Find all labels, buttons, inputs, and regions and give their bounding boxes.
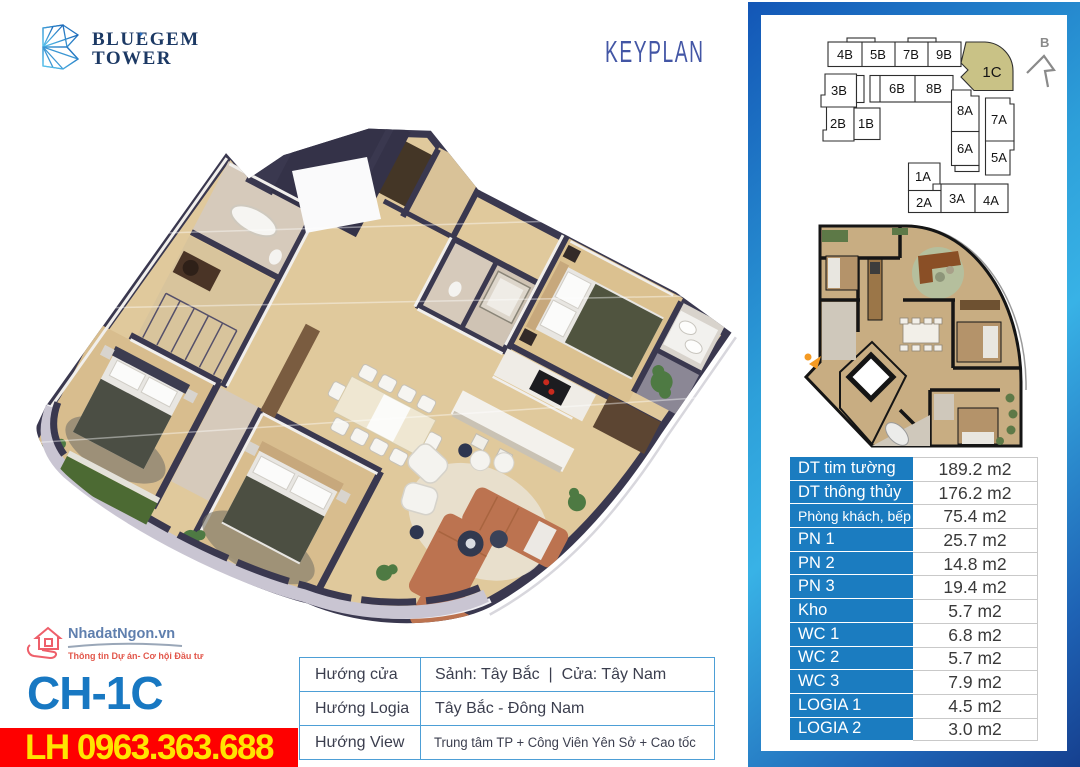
svg-text:1A: 1A <box>915 169 931 184</box>
svg-text:6A: 6A <box>957 141 973 156</box>
svg-text:4B: 4B <box>837 47 853 62</box>
svg-text:1C: 1C <box>982 64 1001 81</box>
svg-text:4A: 4A <box>983 193 999 208</box>
svg-text:Thông tin Dự án- Cơ hội Đầu tư: Thông tin Dự án- Cơ hội Đầu tư <box>68 651 204 661</box>
svg-text:7A: 7A <box>991 112 1007 127</box>
svg-text:9B: 9B <box>936 47 952 62</box>
svg-text:8B: 8B <box>926 81 942 96</box>
svg-text:5B: 5B <box>870 47 886 62</box>
svg-text:1B: 1B <box>858 116 874 131</box>
svg-text:8A: 8A <box>957 103 973 118</box>
svg-text:NhadatNgon.vn: NhadatNgon.vn <box>68 626 175 642</box>
svg-text:6B: 6B <box>889 81 905 96</box>
svg-text:3A: 3A <box>949 191 965 206</box>
svg-text:2B: 2B <box>830 116 846 131</box>
svg-text:2A: 2A <box>916 195 932 210</box>
svg-text:B: B <box>1040 35 1049 50</box>
svg-text:5A: 5A <box>991 150 1007 165</box>
svg-text:3B: 3B <box>831 83 847 98</box>
svg-text:7B: 7B <box>903 47 919 62</box>
